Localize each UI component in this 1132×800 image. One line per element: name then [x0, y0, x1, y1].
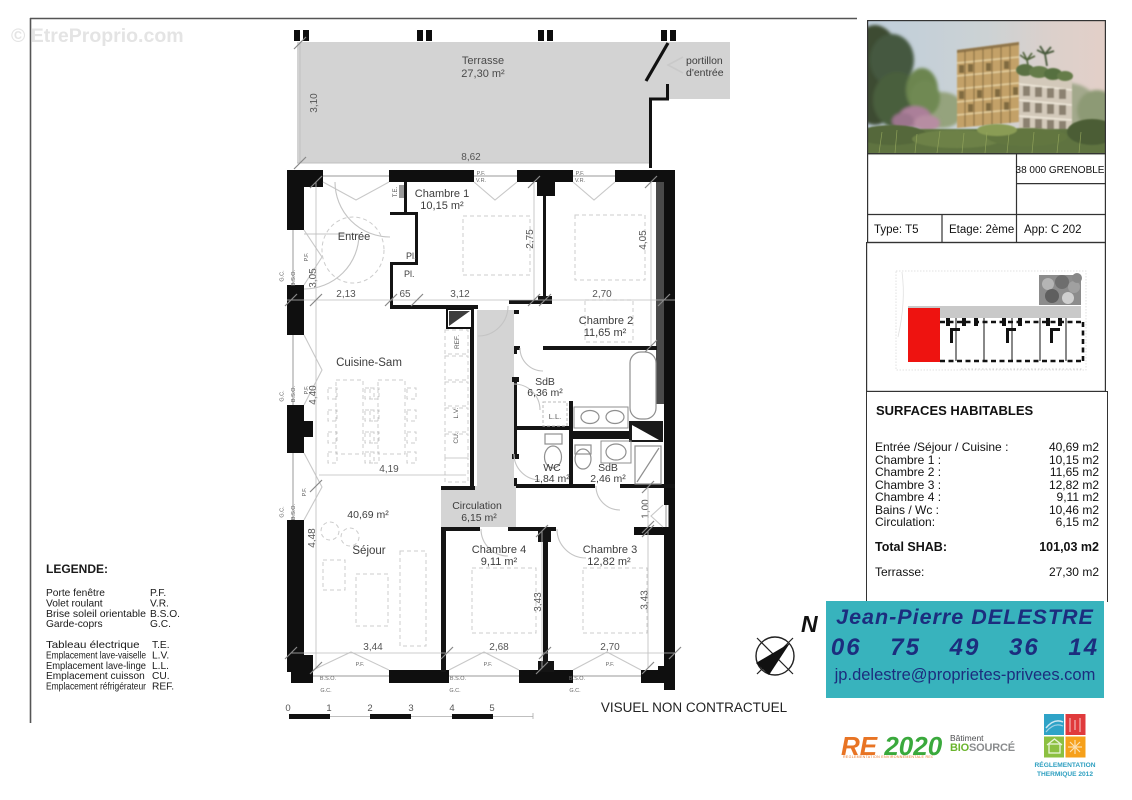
svg-text:Porte fenêtre: Porte fenêtre: [46, 588, 105, 599]
svg-text:G.C.: G.C.: [280, 390, 286, 402]
svg-text:L.L.: L.L.: [549, 412, 562, 421]
svg-text:Chambre 3: Chambre 3: [583, 544, 637, 556]
svg-text:2,70: 2,70: [592, 289, 612, 300]
svg-text:B.S.O.: B.S.O.: [569, 676, 586, 682]
svg-text:G.C.: G.C.: [569, 688, 581, 694]
svg-text:Type: T5: Type: T5: [874, 224, 919, 236]
svg-text:5: 5: [489, 703, 494, 714]
svg-text:Garde-coprs: Garde-coprs: [46, 619, 103, 630]
svg-text:10,15 m²: 10,15 m²: [420, 200, 464, 212]
svg-text:1,00: 1,00: [641, 499, 652, 519]
svg-text:27,30 m²: 27,30 m²: [461, 68, 505, 80]
svg-text:Emplacement cuisson: Emplacement cuisson: [46, 671, 145, 682]
svg-text:P.F.: P.F.: [304, 252, 310, 261]
svg-text:38 000 GRENOBLE: 38 000 GRENOBLE: [1016, 165, 1105, 176]
svg-text:Chambre 4: Chambre 4: [472, 544, 526, 556]
svg-text:G.C.: G.C.: [449, 688, 461, 694]
svg-text:65: 65: [399, 289, 411, 300]
svg-text:P.F.: P.F.: [302, 487, 308, 496]
svg-text:4: 4: [449, 703, 454, 714]
svg-text:T.E.: T.E.: [393, 187, 399, 198]
svg-text:V.R.: V.R.: [476, 178, 487, 184]
svg-text:Volet roulant: Volet roulant: [46, 598, 103, 609]
svg-text:App: C 202: App: C 202: [1024, 224, 1082, 236]
svg-text:© EtreProprio.com: © EtreProprio.com: [11, 25, 184, 47]
svg-text:REF.: REF.: [152, 682, 174, 693]
svg-text:Emplacement réfrigérateur: Emplacement réfrigérateur: [46, 682, 146, 693]
svg-text:6,36 m²: 6,36 m²: [527, 387, 563, 399]
svg-text:V.R.: V.R.: [150, 598, 169, 609]
svg-text:2,46 m²: 2,46 m²: [590, 473, 626, 485]
svg-text:G.C.: G.C.: [280, 270, 286, 282]
svg-text:3,05: 3,05: [308, 268, 319, 288]
svg-text:G.C.: G.C.: [150, 619, 171, 630]
svg-text:P.F.: P.F.: [477, 171, 486, 177]
svg-text:Chambre 1: Chambre 1: [415, 188, 469, 200]
svg-text:3: 3: [408, 703, 413, 714]
svg-text:Etage: 2ème: Etage: 2ème: [949, 224, 1014, 236]
svg-text:T.E.: T.E.: [152, 640, 170, 651]
svg-text:Terrasse: Terrasse: [462, 55, 504, 67]
svg-text:Circulation: Circulation: [452, 500, 502, 512]
svg-text:Emplacement lave-linge: Emplacement lave-linge: [46, 661, 146, 672]
svg-text:G.C.: G.C.: [280, 506, 286, 518]
svg-text:G.C.: G.C.: [320, 688, 332, 694]
svg-text:Chambre 2: Chambre 2: [579, 315, 633, 327]
svg-text:RÉGLEMENTATION: RÉGLEMENTATION: [1035, 760, 1096, 769]
svg-text:N: N: [801, 611, 818, 637]
svg-text:P.F.: P.F.: [150, 588, 166, 599]
svg-text:8,62: 8,62: [461, 152, 481, 163]
svg-text:L.V.: L.V.: [453, 407, 460, 418]
svg-text:CU.: CU.: [453, 432, 460, 443]
svg-text:2,13: 2,13: [336, 289, 356, 300]
svg-text:P.F.: P.F.: [576, 171, 585, 177]
svg-text:B.S.O.: B.S.O.: [291, 503, 297, 520]
svg-text:4,19: 4,19: [379, 464, 399, 475]
svg-text:Cuisine-Sam: Cuisine-Sam: [336, 357, 402, 369]
svg-text:Pl.: Pl.: [404, 269, 415, 279]
svg-text:B.S.O.: B.S.O.: [450, 676, 467, 682]
svg-text:d'entrée: d'entrée: [686, 67, 724, 79]
svg-text:2,70: 2,70: [600, 642, 620, 653]
svg-text:6,15 m²: 6,15 m²: [461, 512, 497, 524]
svg-text:LEGENDE:: LEGENDE:: [46, 562, 108, 576]
svg-text:3,12: 3,12: [450, 289, 470, 300]
svg-text:Emplacement lave-vaiselle: Emplacement lave-vaiselle: [46, 650, 146, 661]
svg-text:1,84 m²: 1,84 m²: [534, 473, 570, 485]
svg-text:1: 1: [326, 703, 331, 714]
svg-text:Pl.: Pl.: [406, 251, 417, 261]
svg-text:3,44: 3,44: [363, 642, 383, 653]
svg-text:REF.: REF.: [454, 335, 461, 349]
svg-text:0: 0: [285, 703, 290, 714]
svg-text:B.S.O.: B.S.O.: [291, 385, 297, 402]
svg-text:Séjour: Séjour: [352, 545, 385, 557]
svg-text:B.S.O.: B.S.O.: [150, 609, 180, 620]
svg-text:P.F.: P.F.: [356, 662, 365, 668]
svg-text:3,10: 3,10: [309, 93, 320, 113]
svg-text:4,40: 4,40: [308, 385, 319, 405]
svg-text:12,82 m²: 12,82 m²: [587, 556, 631, 568]
svg-text:L.L.: L.L.: [152, 661, 169, 672]
svg-text:B.S.O.: B.S.O.: [291, 269, 297, 286]
svg-text:L.V.: L.V.: [152, 650, 169, 661]
svg-text:portillon: portillon: [686, 55, 723, 67]
svg-text:Brise soleil orientable: Brise soleil orientable: [46, 609, 146, 620]
svg-text:2: 2: [367, 703, 372, 714]
svg-text:11,65 m²: 11,65 m²: [584, 327, 627, 339]
svg-text:40,69 m²: 40,69 m²: [347, 509, 389, 521]
svg-text:V.R.: V.R.: [575, 178, 586, 184]
svg-text:B.S.O.: B.S.O.: [320, 676, 337, 682]
svg-text:Entrée: Entrée: [338, 231, 370, 243]
svg-text:CU.: CU.: [152, 671, 170, 682]
svg-text:P.F.: P.F.: [484, 662, 493, 668]
svg-text:P.F.: P.F.: [606, 662, 615, 668]
svg-text:THERMIQUE 2012: THERMIQUE 2012: [1037, 771, 1093, 778]
svg-text:Tableau électrique: Tableau électrique: [46, 640, 140, 651]
svg-text:9,11 m²: 9,11 m²: [481, 556, 518, 568]
svg-text:4,05: 4,05: [638, 230, 649, 250]
svg-text:3,43: 3,43: [640, 590, 651, 610]
svg-text:2,68: 2,68: [489, 642, 509, 653]
svg-text:VISUEL NON CONTRACTUEL: VISUEL NON CONTRACTUEL: [601, 700, 788, 715]
